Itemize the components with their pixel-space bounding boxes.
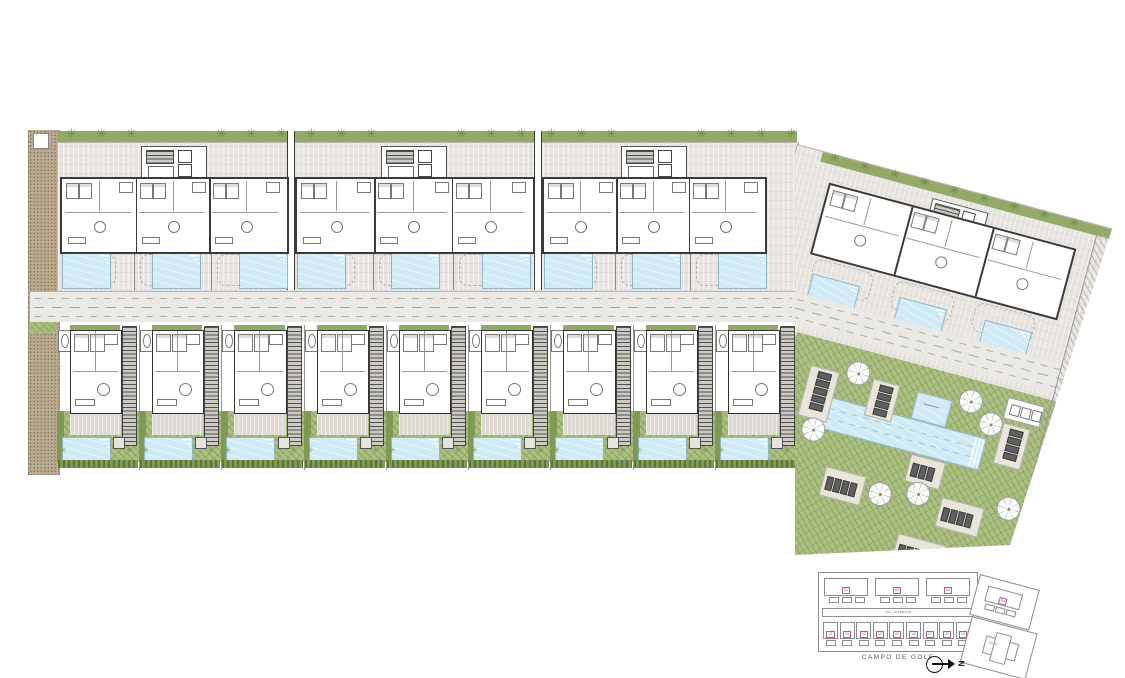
top-hedge <box>57 131 797 142</box>
inner-wall <box>944 220 952 247</box>
villa-deck <box>728 411 779 435</box>
key-plan-villa-label: V1 <box>826 631 834 638</box>
bed <box>79 183 92 199</box>
apartment-floorplan <box>542 177 767 254</box>
planter-box <box>278 437 290 449</box>
key-plan-villa: V2 <box>840 622 855 639</box>
key-plan-pool-tick <box>1005 609 1016 617</box>
sofa <box>695 237 713 244</box>
garden-hedge-bottom <box>58 460 138 468</box>
inner-wall <box>99 181 100 211</box>
bathroom <box>186 334 200 345</box>
key-plan-pool-tick <box>842 640 852 646</box>
tree-icon: ✳ <box>997 542 1009 555</box>
pool-steps <box>757 439 767 449</box>
core-stair <box>386 150 414 164</box>
bed <box>238 334 253 352</box>
bed <box>321 334 336 352</box>
inner-wall <box>212 212 278 213</box>
pool-steps-strip <box>968 438 984 468</box>
road-dash-line <box>828 408 975 448</box>
stair-core <box>141 146 207 181</box>
parasol-pole <box>989 422 993 426</box>
inner-wall <box>649 371 694 372</box>
dining-table <box>1015 277 1030 292</box>
parasol-pole <box>878 492 882 496</box>
stair-strip <box>204 326 219 446</box>
unit-divider-wall <box>209 179 211 252</box>
garden-hedge-bottom <box>716 460 796 468</box>
pool <box>239 253 288 289</box>
villa-deck <box>152 411 203 435</box>
kitchen-counter <box>157 399 177 406</box>
key-plan-villa-label: V4 <box>876 631 884 638</box>
villa-deck <box>317 411 368 435</box>
sofa <box>142 237 160 244</box>
bathroom <box>269 334 283 345</box>
planter-box <box>113 437 125 449</box>
bbq-unit <box>1030 410 1043 423</box>
inner-wall <box>237 371 282 372</box>
bathroom <box>598 334 612 345</box>
inner-wall <box>73 371 118 372</box>
right-section: ✳✳✳✳✳✳✳✳✳✳✳✳ <box>795 128 1125 590</box>
stair-strip <box>616 326 631 446</box>
inner-wall <box>139 212 205 213</box>
key-plan-pool-tick <box>909 640 919 646</box>
tree-icon: ✳ <box>783 447 791 456</box>
sun-lounger <box>919 550 929 565</box>
garden-hedge-bottom <box>140 460 220 468</box>
bed <box>501 334 516 352</box>
kitchen-counter <box>75 399 95 406</box>
key-plan-pool-tick <box>892 640 902 646</box>
pool-steps <box>933 308 945 320</box>
dining-table <box>508 383 521 396</box>
tree-icon: ✳ <box>66 128 77 141</box>
bed <box>561 183 574 199</box>
tree-icon: ✳ <box>546 128 557 141</box>
bed <box>337 334 352 352</box>
dining-table <box>97 383 110 396</box>
villa-plot: ✳✳ <box>139 325 222 470</box>
dining-table <box>179 383 192 396</box>
stair-core <box>381 146 447 181</box>
stair-strip <box>533 326 548 446</box>
unit-divider-wall <box>452 179 454 252</box>
inner-wall <box>619 212 683 213</box>
planter-box <box>771 437 783 449</box>
dining-table <box>261 383 274 396</box>
sofa <box>622 237 640 244</box>
unit-divider-wall <box>975 229 995 297</box>
sofa <box>458 237 476 244</box>
tree-icon: ✳ <box>366 128 377 141</box>
north-arrow-head <box>948 659 955 669</box>
key-plan-pool-tick <box>875 640 885 646</box>
key-plan-pool-tick <box>925 640 935 646</box>
bed <box>693 183 706 199</box>
key-plan-villa-label: V2 <box>843 631 851 638</box>
tree-icon: ✳ <box>726 128 737 141</box>
tree-icon: ✳ <box>756 128 767 141</box>
key-plan-villa-label: V3 <box>860 631 868 638</box>
dining-table <box>720 221 732 233</box>
inner-wall <box>506 331 507 371</box>
road-dash-line <box>826 417 973 457</box>
villa-plot: ✳✳ <box>304 325 387 470</box>
sofa <box>215 237 233 244</box>
pool-steps <box>428 255 438 265</box>
planter-box <box>689 437 701 449</box>
inner-wall <box>671 331 672 371</box>
pool-steps <box>755 255 765 265</box>
bed <box>301 183 314 199</box>
bed <box>732 334 747 352</box>
bed <box>748 334 763 352</box>
tree-icon: ✳ <box>619 447 627 456</box>
sofa <box>550 237 568 244</box>
sun-lounger-pad <box>934 497 984 537</box>
terrace-divider <box>615 250 616 290</box>
bathroom <box>357 182 371 193</box>
inner-wall <box>377 212 446 213</box>
villa-floorplan <box>563 330 615 414</box>
north-arrow-shaft <box>932 663 948 665</box>
tree-icon: ✳ <box>486 128 497 141</box>
garden-hedge-bottom <box>469 460 549 468</box>
pool <box>718 253 767 289</box>
tree-icon: ✳ <box>306 447 314 456</box>
villa-deck <box>399 411 450 435</box>
pool <box>152 253 201 289</box>
parasol-pole <box>916 492 920 496</box>
inner-wall <box>336 181 337 211</box>
parasol-icon <box>865 479 894 508</box>
core-elevator <box>178 164 192 177</box>
villa-deck <box>70 411 121 435</box>
bed <box>74 334 89 352</box>
tree-icon: ✳ <box>696 128 707 141</box>
garden-hedge-bottom <box>387 460 467 468</box>
bathroom <box>744 182 758 193</box>
parasol-pole <box>1007 507 1011 511</box>
stair-strip <box>780 326 795 446</box>
inner-wall <box>987 259 1061 280</box>
villa-floorplan <box>399 330 451 414</box>
pool-steps <box>181 439 191 449</box>
unit-divider-wall <box>616 179 618 252</box>
pool-steps <box>189 255 199 265</box>
pool-steps <box>263 439 273 449</box>
pool-steps <box>428 439 438 449</box>
planter-box <box>195 437 207 449</box>
bathroom <box>119 182 133 193</box>
utility-oval <box>637 334 645 348</box>
tree-icon: ✳ <box>717 447 725 456</box>
inner-wall <box>725 181 726 211</box>
bed <box>456 183 469 199</box>
key-plan-villa: V1 <box>823 622 838 639</box>
core-stair <box>146 150 174 164</box>
garden-hedge-bottom <box>222 460 302 468</box>
bed <box>226 183 239 199</box>
pool <box>544 253 593 289</box>
inner-wall <box>566 371 611 372</box>
key-plan-villa-label: V8 <box>943 631 951 638</box>
key-plan-villa: V6 <box>906 622 921 639</box>
dining-table <box>934 255 949 270</box>
pool-steps <box>519 255 529 265</box>
tree-icon: ✳ <box>223 447 231 456</box>
utility-oval <box>225 334 233 348</box>
tree-icon: ✳ <box>207 447 215 456</box>
utility-oval <box>308 334 316 348</box>
bathroom <box>599 182 613 193</box>
inner-wall <box>490 181 491 211</box>
tree-icon: ✳ <box>96 128 107 141</box>
unit-divider-wall <box>894 207 914 275</box>
bed <box>1004 237 1021 256</box>
bed <box>842 193 859 212</box>
utility-oval <box>143 334 151 348</box>
dining-table <box>94 221 106 233</box>
tree-icon: ✳ <box>336 128 347 141</box>
core-elevator <box>418 150 432 163</box>
inner-wall <box>484 371 529 372</box>
inner-wall <box>588 331 589 371</box>
dining-table <box>755 383 768 396</box>
pool <box>482 253 531 289</box>
apartment-floorplan <box>295 177 535 254</box>
inner-wall <box>173 181 174 211</box>
tree-icon: ✳ <box>246 128 257 141</box>
utility-oval <box>554 334 562 348</box>
planter-box <box>524 437 536 449</box>
inner-wall <box>259 331 260 371</box>
bathroom <box>104 334 118 345</box>
inner-wall <box>731 371 776 372</box>
pool-steps <box>99 255 109 265</box>
block-divider <box>534 131 542 290</box>
villa-deck <box>234 411 285 435</box>
unit-divider-wall <box>689 179 691 252</box>
tree-icon: ✳ <box>576 128 587 141</box>
parasol-pole <box>969 400 973 404</box>
stair-strip <box>369 326 384 446</box>
core-stair <box>626 150 654 164</box>
inner-wall <box>413 181 414 211</box>
inner-wall <box>177 331 178 371</box>
kitchen-counter <box>733 399 753 406</box>
key-plan-pool-tick <box>984 603 995 611</box>
stair-strip <box>122 326 137 446</box>
utility-oval <box>390 334 398 348</box>
sofa <box>68 237 86 244</box>
bed <box>213 183 226 199</box>
parasol-pole <box>811 428 815 432</box>
garden-hedge-bottom <box>634 460 714 468</box>
bed <box>140 183 153 199</box>
dining-table <box>853 233 868 248</box>
villa-deck <box>563 411 614 435</box>
tree-icon: ✳ <box>470 447 478 456</box>
villa-plot: ✳✳ <box>221 325 304 470</box>
tree-icon: ✳ <box>126 128 137 141</box>
key-plan-villa: V4 <box>873 622 888 639</box>
bed <box>485 334 500 352</box>
villa-floorplan <box>646 330 698 414</box>
dining-table <box>426 383 439 396</box>
core-elevator <box>178 150 192 163</box>
bed <box>923 215 940 234</box>
stair-strip <box>698 326 713 446</box>
terrace-divider <box>211 250 212 290</box>
parasol-pole <box>857 371 861 375</box>
villa-plot: ✳✳ <box>550 325 633 470</box>
inner-wall <box>547 212 611 213</box>
tree-icon: ✳ <box>753 518 765 531</box>
key-plan: B1B2B3 VIAL INTERIOR V1V2V3V4V5V6V7V8V9 … <box>810 566 1070 678</box>
villa-plot: ✳✳ <box>57 325 140 470</box>
pool-steps <box>334 255 344 265</box>
tree-icon: ✳ <box>536 447 544 456</box>
planter-box <box>607 437 619 449</box>
bed <box>567 334 582 352</box>
tree-icon: ✳ <box>456 128 467 141</box>
parasol-icon <box>956 387 985 416</box>
key-plan-villa: V8 <box>939 622 954 639</box>
key-plan-villa-label: V5 <box>893 631 901 638</box>
tree-icon: ✳ <box>59 447 67 456</box>
site-plan-canvas: ✳✳✳✳✳✳✳✳✳✳✳✳✳✳✳✳✳✳✳✳✳✳✳✳✳✳✳✳✳✳✳✳✳✳✳✳✳✳✳✳… <box>0 0 1125 678</box>
bathroom <box>266 182 280 193</box>
key-plan-villa-label: V6 <box>909 631 917 638</box>
bathroom <box>435 182 449 193</box>
inner-wall <box>906 238 980 259</box>
kitchen-counter <box>651 399 671 406</box>
villa-plot: ✳✳ <box>715 325 797 470</box>
inner-wall <box>95 331 96 371</box>
terrace-divider <box>134 250 135 290</box>
kitchen-counter <box>568 399 588 406</box>
tree-icon: ✳ <box>141 447 149 456</box>
inner-wall <box>300 212 369 213</box>
villa-floorplan <box>481 330 533 414</box>
dining-table <box>241 221 253 233</box>
bed <box>620 183 633 199</box>
key-plan-pool-tick <box>942 640 952 646</box>
terrace-divider <box>690 250 691 290</box>
pool-steps <box>276 255 286 265</box>
inner-wall <box>580 181 581 211</box>
bed <box>469 183 482 199</box>
planter-box <box>442 437 454 449</box>
unit-divider-wall <box>374 179 376 252</box>
bed <box>378 183 391 199</box>
tree-icon: ✳ <box>701 447 709 456</box>
bed <box>172 334 187 352</box>
villa-deck <box>481 411 532 435</box>
inner-wall <box>246 181 247 211</box>
villa-floorplan <box>234 330 286 414</box>
pool <box>391 253 440 289</box>
dining-table <box>485 221 497 233</box>
kitchen-counter <box>404 399 424 406</box>
inner-wall <box>342 331 343 371</box>
road-dash-line <box>34 298 792 299</box>
pool-steps <box>592 439 602 449</box>
inner-wall <box>863 198 871 225</box>
inner-wall <box>753 331 754 371</box>
kitchen-counter <box>239 399 259 406</box>
key-plan-villa: V3 <box>856 622 871 639</box>
parasol-icon <box>994 494 1023 523</box>
pool-steps <box>346 439 356 449</box>
villa-floorplan <box>317 330 369 414</box>
planter-box <box>360 437 372 449</box>
north-arrow-icon <box>926 656 943 673</box>
core-elevator <box>658 150 672 163</box>
pool <box>62 253 111 289</box>
unit-divider-wall <box>136 179 138 252</box>
utility-oval <box>719 334 727 348</box>
entrance-box <box>33 133 49 149</box>
villa-floorplan <box>728 330 780 414</box>
bed <box>666 334 681 352</box>
bed <box>153 183 166 199</box>
bed <box>706 183 719 199</box>
key-plan-pool-tick <box>859 640 869 646</box>
villa-row: ✳✳✳✳✳✳✳✳✳✳✳✳✳✳✳✳✳✳ <box>57 325 797 470</box>
north-label: N <box>956 661 965 667</box>
tree-icon: ✳ <box>635 447 643 456</box>
bed <box>650 334 665 352</box>
sofa <box>380 237 398 244</box>
apartment-floorplan <box>60 177 289 254</box>
villa-plot: ✳✳ <box>633 325 716 470</box>
sun-lounger-pad <box>819 466 867 506</box>
golf-course-label: CAMPO DE GOLF <box>828 654 968 661</box>
tree-icon: ✳ <box>306 128 317 141</box>
bathroom <box>433 334 447 345</box>
tree-icon: ✳ <box>216 128 227 141</box>
bed <box>548 183 561 199</box>
pool <box>297 253 346 289</box>
sun-lounger <box>912 548 922 563</box>
bed <box>633 183 646 199</box>
dining-table <box>575 221 587 233</box>
key-plan-pool-tick <box>826 640 836 646</box>
inner-wall <box>455 212 524 213</box>
villa-floorplan <box>152 330 204 414</box>
dining-table <box>648 221 660 233</box>
villa-plot: ✳✳ <box>468 325 551 470</box>
inner-wall <box>1026 241 1034 268</box>
dining-table <box>168 221 180 233</box>
pool-steps <box>581 255 591 265</box>
tree-icon: ✳ <box>276 128 287 141</box>
bed <box>156 334 171 352</box>
bed <box>314 183 327 199</box>
kitchen-counter <box>322 399 342 406</box>
bathroom <box>515 334 529 345</box>
utility-oval <box>472 334 480 348</box>
key-plan-villa: V7 <box>923 622 938 639</box>
utility-oval <box>61 334 69 348</box>
bathroom <box>192 182 206 193</box>
stair-strip <box>451 326 466 446</box>
